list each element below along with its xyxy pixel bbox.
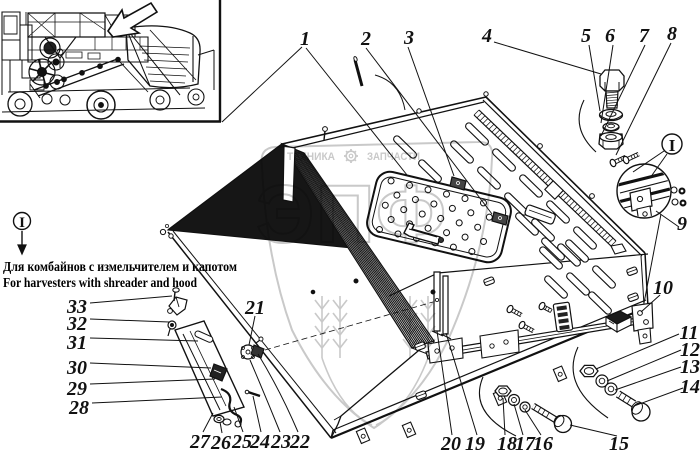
svg-text:22: 22 [289, 431, 310, 453]
svg-text:ЭПФ: ЭПФ [256, 169, 446, 260]
svg-text:16: 16 [533, 433, 553, 455]
svg-text:I: I [669, 136, 676, 155]
svg-text:33: 33 [66, 296, 87, 318]
svg-text:For harvesters with shreader a: For harvesters with shreader and hood [3, 275, 197, 290]
svg-text:3: 3 [403, 27, 414, 49]
svg-text:13: 13 [680, 356, 700, 378]
svg-text:7: 7 [639, 25, 650, 47]
svg-text:2: 2 [360, 28, 371, 50]
svg-text:4: 4 [481, 25, 492, 47]
svg-text:27: 27 [189, 431, 211, 453]
svg-text:6: 6 [605, 25, 615, 47]
svg-text:15: 15 [609, 433, 629, 455]
svg-text:5: 5 [581, 25, 591, 47]
svg-text:14: 14 [680, 376, 700, 398]
svg-text:26: 26 [210, 432, 231, 454]
svg-text:18: 18 [497, 433, 517, 455]
svg-text:I: I [19, 215, 25, 231]
svg-text:8: 8 [667, 23, 677, 45]
svg-text:23: 23 [270, 431, 291, 453]
svg-text:1: 1 [300, 28, 310, 50]
svg-text:9: 9 [677, 213, 687, 235]
svg-text:25: 25 [231, 431, 252, 453]
svg-text:31: 31 [66, 332, 87, 354]
svg-text:24: 24 [249, 431, 270, 453]
svg-text:ЗАПЧАСТИ: ЗАПЧАСТИ [367, 151, 420, 163]
svg-text:21: 21 [244, 297, 265, 319]
svg-text:17: 17 [515, 433, 536, 455]
svg-text:10: 10 [653, 277, 673, 299]
svg-text:30: 30 [66, 357, 87, 379]
svg-text:29: 29 [66, 378, 87, 400]
svg-text:28: 28 [68, 397, 89, 419]
svg-text:19: 19 [465, 433, 485, 455]
svg-text:20: 20 [440, 433, 461, 455]
svg-text:ТЕХНИКА: ТЕХНИКА [287, 151, 335, 163]
